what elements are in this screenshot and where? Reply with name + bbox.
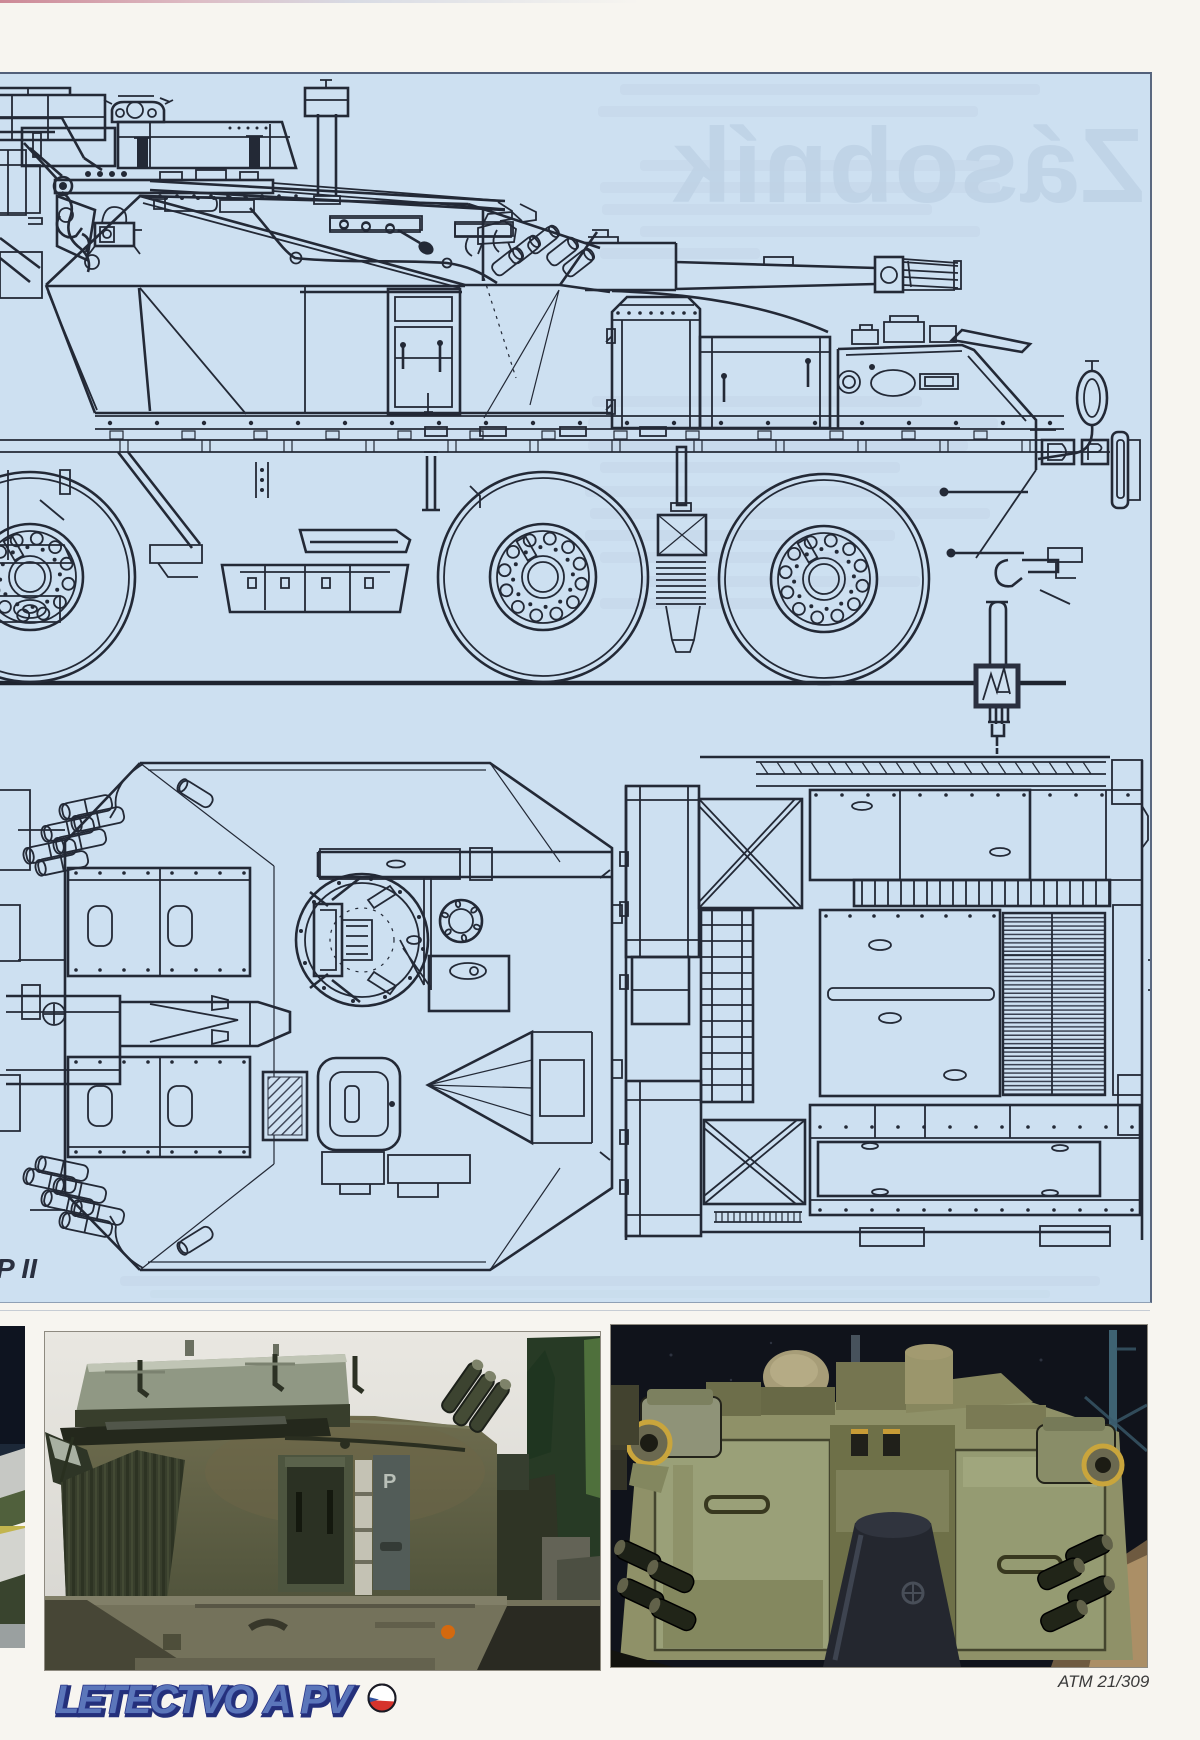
- svg-text:LETECTVO A PV: LETECTVO A PV: [55, 1678, 355, 1722]
- svg-text:P II: P II: [0, 1253, 38, 1284]
- svg-text:P: P: [383, 1471, 396, 1493]
